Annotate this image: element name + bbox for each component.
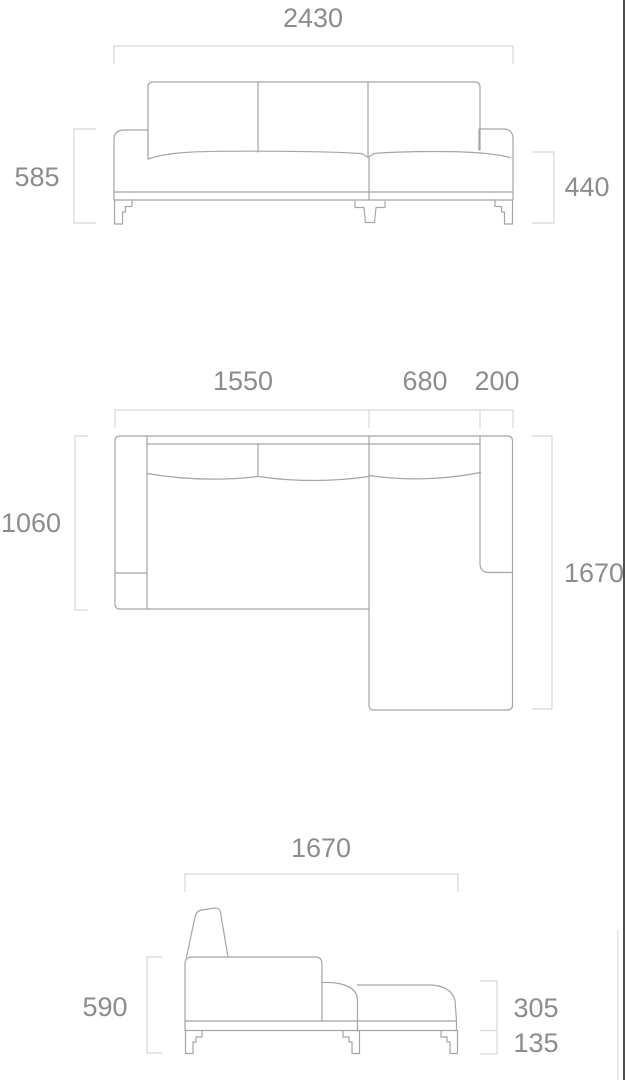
front-back-cushions — [148, 82, 480, 155]
side-height-dim-bracket — [147, 957, 162, 1053]
plan-cushion-front-3 — [369, 473, 481, 479]
side-view: 1670 590 305 135 — [82, 833, 558, 1058]
plan-chaise-width-label: 680 — [402, 366, 447, 396]
scrollbar-track[interactable] — [617, 930, 619, 1080]
side-back-cushion — [187, 908, 229, 957]
side-body — [185, 957, 322, 1031]
front-center-leg — [355, 202, 385, 223]
side-front-leg — [441, 1031, 458, 1054]
plan-width-dim-bracket — [115, 410, 513, 428]
front-width-dim-label: 2430 — [283, 3, 343, 33]
side-base-rail — [185, 1021, 457, 1031]
plan-depth-dim-label: 1060 — [1, 508, 61, 538]
front-left-height-dim-bracket — [74, 129, 96, 223]
sofa-dimension-diagram: 2430 585 440 1550 680 200 — [0, 0, 625, 1080]
front-right-height-dim-label: 440 — [564, 172, 609, 202]
side-leg-height-dim-label: 135 — [513, 1028, 558, 1058]
plan-chaise-length-dim-label: 1670 — [564, 558, 624, 588]
side-back-leg — [186, 1031, 203, 1054]
front-width-dim-bracket — [114, 46, 513, 64]
side-height-dim-label: 590 — [82, 992, 127, 1022]
side-seat-height-dim-bracket — [480, 981, 497, 1054]
side-depth-dim-bracket — [185, 874, 458, 892]
front-left-leg — [115, 200, 133, 224]
side-seat-cushion-edge — [322, 982, 358, 1031]
front-right-height-dim-bracket — [532, 152, 554, 223]
plan-cushion-front-1 — [147, 474, 258, 480]
diagram-canvas: 2430 585 440 1550 680 200 — [0, 0, 625, 1080]
front-seat-cushion-right — [368, 152, 510, 158]
plan-chaise-length-dim-bracket — [532, 436, 552, 709]
front-right-arm — [479, 129, 513, 200]
plan-arm-width-label: 200 — [474, 366, 519, 396]
plan-depth-dim-bracket — [75, 436, 88, 610]
front-left-arm — [114, 130, 148, 200]
side-seat-height-dim-label: 305 — [513, 993, 558, 1023]
front-left-height-dim-label: 585 — [14, 162, 59, 192]
plan-view: 1550 680 200 1060 1670 — [1, 366, 624, 710]
plan-right-arm-inner-edge — [480, 436, 513, 573]
front-view: 2430 585 440 — [14, 3, 609, 224]
side-depth-dim-label: 1670 — [291, 833, 351, 863]
plan-cushion-front-2 — [258, 477, 369, 481]
front-right-leg — [495, 200, 513, 224]
plan-seat-width-label: 1550 — [213, 366, 273, 396]
side-middle-leg — [343, 1031, 360, 1054]
side-chaise — [358, 985, 457, 1021]
